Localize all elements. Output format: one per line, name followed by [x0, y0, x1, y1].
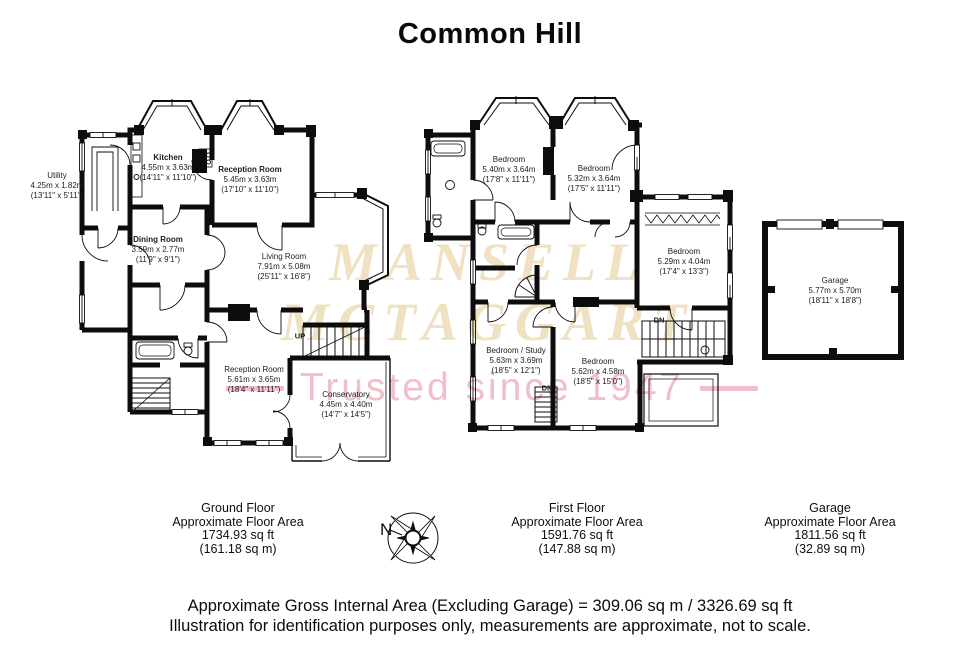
- room-label-bedroom-4: Bedroom 5.62m x 4.58m (18'5" x 15'0"): [572, 357, 625, 387]
- stair-label-dn-right: DN: [654, 316, 665, 325]
- ground-floor-plan: [60, 85, 440, 485]
- stair-label-dn-bottom: DN: [542, 384, 553, 393]
- compass-rose-icon: N: [372, 502, 452, 574]
- room-label-bedroom-2: Bedroom 5.32m x 3.64m (17'5" x 11'11"): [568, 164, 621, 194]
- room-label-bedroom-3: Bedroom 5.29m x 4.04m (17'4" x 13'3"): [658, 247, 711, 277]
- room-label-reception-room-bottom: Reception Room 5.61m x 3.65m (18'4" x 11…: [224, 365, 284, 395]
- footer-line-2: Illustration for identification purposes…: [0, 617, 980, 636]
- room-label-conservatory: Conservatory 4.45m x 4.40m (14'7" x 14'5…: [320, 390, 373, 420]
- first-floor-summary: First Floor Approximate Floor Area 1591.…: [511, 502, 642, 556]
- first-floor-zigzag-band: [645, 213, 720, 225]
- first-floor-staircase-right: [642, 321, 725, 357]
- first-floor-plan: [420, 85, 750, 485]
- room-label-garage: Garage 5.77m x 5.70m (18'11" x 18'8"): [808, 276, 861, 306]
- room-label-living-room: Living Room 7.91m x 5.08m (25'11" x 16'8…: [257, 252, 310, 282]
- stair-label-up: UP: [295, 332, 305, 341]
- ground-floor-stair-small: [132, 378, 170, 412]
- room-label-bedroom-study: Bedroom / Study 5.63m x 3.69m (18'5" x 1…: [486, 346, 546, 376]
- floorplan-page: Common Hill: [0, 0, 980, 653]
- room-label-kitchen: Kitchen 4.55m x 3.63m (14'11" x 11'10"): [140, 153, 197, 183]
- room-label-reception-room-top: Reception Room 5.45m x 3.63m (17'10" x 1…: [218, 165, 282, 195]
- room-label-bedroom-1: Bedroom 5.40m x 3.64m (17'8" x 11'11"): [483, 155, 536, 185]
- page-title: Common Hill: [0, 18, 980, 51]
- footer-line-1: Approximate Gross Internal Area (Excludi…: [0, 597, 980, 616]
- ground-floor-staircase: [303, 326, 367, 357]
- compass-north-label: N: [380, 520, 392, 539]
- first-floor-winder-stair: [515, 275, 537, 297]
- room-label-utility: Utility 4.25m x 1.82m (13'11" x 5'11"): [31, 171, 84, 201]
- room-label-dining-room: Dining Room 3.59m x 2.77m (11'9" x 9'1"): [132, 235, 185, 265]
- conservatory-roof-outline: [644, 374, 718, 426]
- garage-summary: Garage Approximate Floor Area 1811.56 sq…: [764, 502, 895, 556]
- ground-floor-summary: Ground Floor Approximate Floor Area 1734…: [172, 502, 303, 556]
